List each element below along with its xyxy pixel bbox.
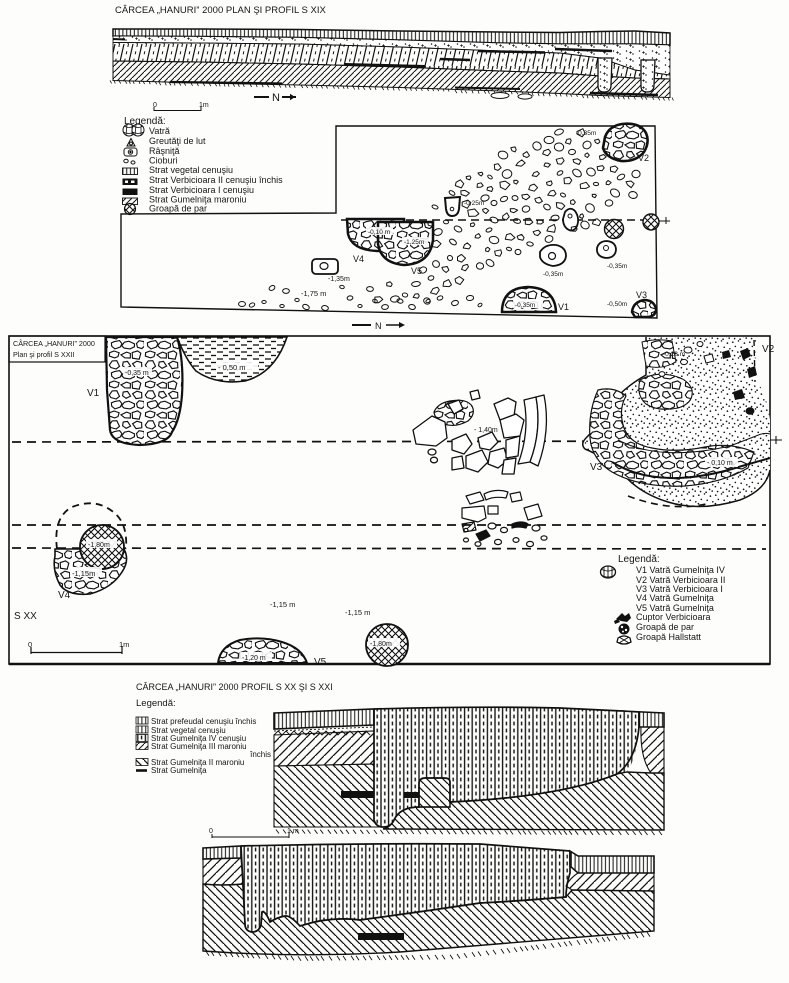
svg-text:Greutăţi de lut: Greutăţi de lut bbox=[149, 136, 206, 146]
svg-text:închis: închis bbox=[249, 750, 271, 759]
svg-text:0: 0 bbox=[209, 828, 213, 835]
svg-text:V2: V2 bbox=[762, 344, 775, 355]
svg-text:Legendă:: Legendă: bbox=[618, 554, 660, 565]
svg-text:N: N bbox=[272, 92, 280, 104]
svg-text:V1: V1 bbox=[87, 388, 100, 399]
svg-text:Cuptor Verbicioara: Cuptor Verbicioara bbox=[636, 612, 711, 622]
svg-text:-1,80m: -1,80m bbox=[370, 641, 392, 648]
svg-text:Cioburi: Cioburi bbox=[149, 156, 178, 166]
svg-text:Plan şi profil S XXII: Plan şi profil S XXII bbox=[13, 350, 75, 359]
svg-text:-1,75 m: -1,75 m bbox=[301, 289, 326, 298]
svg-text:-1,15 m: -1,15 m bbox=[345, 608, 370, 617]
svg-text:Vatră: Vatră bbox=[149, 126, 170, 136]
svg-text:-0,35m: -0,35m bbox=[515, 302, 535, 309]
svg-text:- 1,40m: - 1,40m bbox=[474, 427, 498, 434]
svg-text:V3: V3 bbox=[590, 462, 603, 473]
svg-text:- 0,50 m: - 0,50 m bbox=[218, 363, 246, 372]
svg-text:Strat prefeudal cenuşiu închis: Strat prefeudal cenuşiu închis bbox=[151, 717, 256, 726]
svg-text:V3: V3 bbox=[636, 290, 647, 300]
svg-text:-0,10 m: -0,10 m bbox=[368, 229, 390, 236]
svg-text:Strat Verbicioara II cenuşiu î: Strat Verbicioara II cenuşiu închis bbox=[149, 175, 283, 185]
svg-text:-1,25m: -1,25m bbox=[404, 239, 424, 246]
svg-text:CÂRCEA „HANURI” 2000 PLAN ŞI P: CÂRCEA „HANURI” 2000 PLAN ŞI PROFIL S XI… bbox=[115, 5, 326, 16]
svg-text:V2: V2 bbox=[638, 153, 649, 163]
svg-text:- 0,10 m: - 0,10 m bbox=[707, 460, 733, 467]
svg-text:-1,15 m: -1,15 m bbox=[270, 600, 295, 609]
svg-text:N: N bbox=[375, 321, 382, 331]
svg-text:-1,15m: -1,15m bbox=[72, 569, 95, 578]
svg-text:V.I: V.I bbox=[125, 190, 132, 196]
svg-text:Strat Gumelniţa III maroniu: Strat Gumelniţa III maroniu bbox=[151, 742, 247, 751]
svg-text:V1 Vatră Gumelniţa IV: V1 Vatră Gumelniţa IV bbox=[636, 565, 725, 575]
svg-text:V4: V4 bbox=[58, 590, 71, 601]
svg-text:-1,35m: -1,35m bbox=[328, 276, 350, 283]
svg-text:-1,20 m: -1,20 m bbox=[242, 655, 266, 662]
svg-text:-1,80m: -1,80m bbox=[88, 542, 110, 549]
svg-text:V5: V5 bbox=[314, 657, 327, 668]
svg-text:Strat Gumelniţa: Strat Gumelniţa bbox=[151, 766, 207, 775]
svg-text:S XX: S XX bbox=[14, 611, 37, 622]
svg-text:V4: V4 bbox=[353, 254, 364, 264]
svg-text:V4 Vatră Gumelniţa: V4 Vatră Gumelniţa bbox=[636, 593, 714, 603]
svg-text:-0,35 m: -0,35 m bbox=[125, 370, 149, 377]
svg-text:1m: 1m bbox=[119, 640, 129, 649]
svg-text:CÂRCEA „HANURI” 2000: CÂRCEA „HANURI” 2000 bbox=[13, 339, 95, 348]
svg-text:Râşniţă: Râşniţă bbox=[149, 146, 180, 156]
svg-text:-0,35m: -0,35m bbox=[543, 271, 563, 278]
svg-text:Groapă Hallstatt: Groapă Hallstatt bbox=[636, 632, 702, 642]
svg-text:Strat vegetal cenuşiu: Strat vegetal cenuşiu bbox=[149, 165, 233, 175]
svg-text:Groapă de par: Groapă de par bbox=[636, 622, 694, 632]
svg-text:Legendă:: Legendă: bbox=[136, 698, 176, 709]
svg-text:Strat Verbicioara I cenuşiu: Strat Verbicioara I cenuşiu bbox=[149, 185, 254, 195]
svg-text:-0,50m: -0,50m bbox=[607, 301, 627, 308]
svg-text:V1: V1 bbox=[558, 302, 569, 312]
svg-text:-0,35m: -0,35m bbox=[607, 263, 627, 270]
svg-text:-0,35m: -0,35m bbox=[576, 130, 596, 137]
svg-text:-0,28 m: -0,28 m bbox=[663, 351, 685, 358]
svg-text:CÂRCEA „HANURI” 2000 PROFIL S: CÂRCEA „HANURI” 2000 PROFIL S XX ŞI S XX… bbox=[136, 682, 333, 692]
svg-text:-0,25m: -0,25m bbox=[464, 200, 484, 207]
svg-text:1m: 1m bbox=[199, 102, 209, 109]
svg-text:Groapă de par: Groapă de par bbox=[149, 204, 207, 214]
